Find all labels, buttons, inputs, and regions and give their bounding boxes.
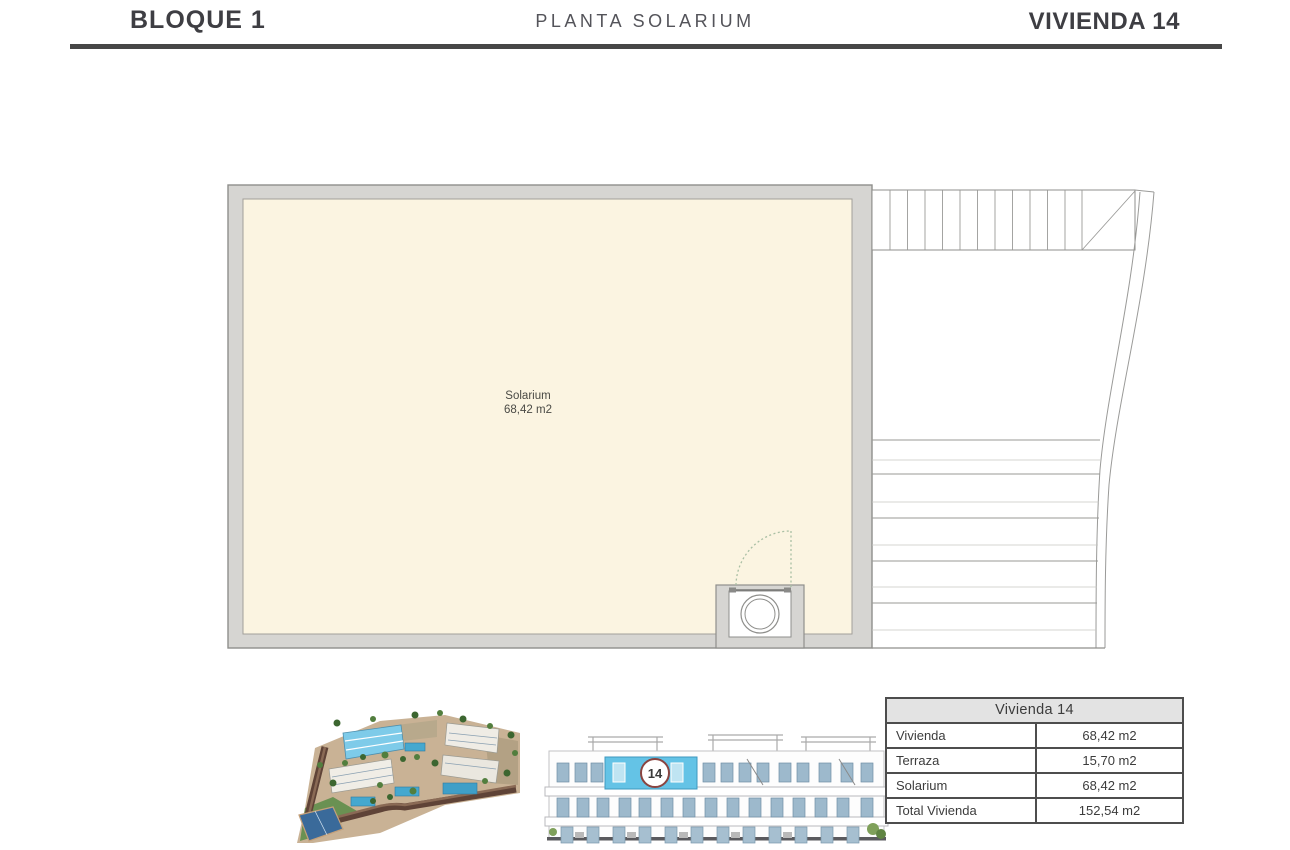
aerial-site-render: [285, 693, 525, 850]
row-value: 68,42 m2: [1037, 724, 1182, 747]
solarium-walls: [228, 185, 872, 648]
header-divider: [70, 44, 1222, 49]
roof-pergolas: [588, 735, 876, 751]
table-row: Solarium 68,42 m2: [887, 774, 1182, 799]
terrace-curved-edge: [872, 190, 1154, 648]
table-row: Vivienda 68,42 m2: [887, 724, 1182, 749]
jacuzzi-icon: [741, 595, 779, 633]
staircase-top: [872, 190, 1135, 250]
terrace-steps: [872, 440, 1100, 630]
highlighted-unit: 14: [605, 757, 697, 789]
row-label: Total Vivienda: [887, 799, 1037, 822]
row-value: 68,42 m2: [1037, 774, 1182, 797]
row-label: Terraza: [887, 749, 1037, 772]
jacuzzi-niche: [716, 585, 804, 648]
block-title: BLOQUE 1: [130, 6, 266, 35]
unit-title: VIVIENDA 14: [1029, 8, 1180, 36]
row-label: Solarium: [887, 774, 1037, 797]
row-value: 15,70 m2: [1037, 749, 1182, 772]
table-row: Terraza 15,70 m2: [887, 749, 1182, 774]
row-value: 152,54 m2: [1037, 799, 1182, 822]
area-table-title: Vivienda 14: [887, 699, 1182, 724]
area-table: Vivienda 14 Vivienda 68,42 m2 Terraza 15…: [885, 697, 1184, 824]
table-row: Total Vivienda 152,54 m2: [887, 799, 1182, 822]
room-name: Solarium: [505, 390, 550, 402]
row-label: Vivienda: [887, 724, 1037, 747]
mid-floor-windows: [557, 798, 873, 817]
building-elevation: 14: [543, 731, 890, 845]
unit-badge-number: 14: [648, 766, 663, 781]
room-area: 68,42 m2: [504, 404, 552, 416]
plan-title: PLANTA SOLARIUM: [535, 11, 754, 32]
floor-plan-drawing: Solarium 68,42 m2: [200, 170, 1180, 670]
